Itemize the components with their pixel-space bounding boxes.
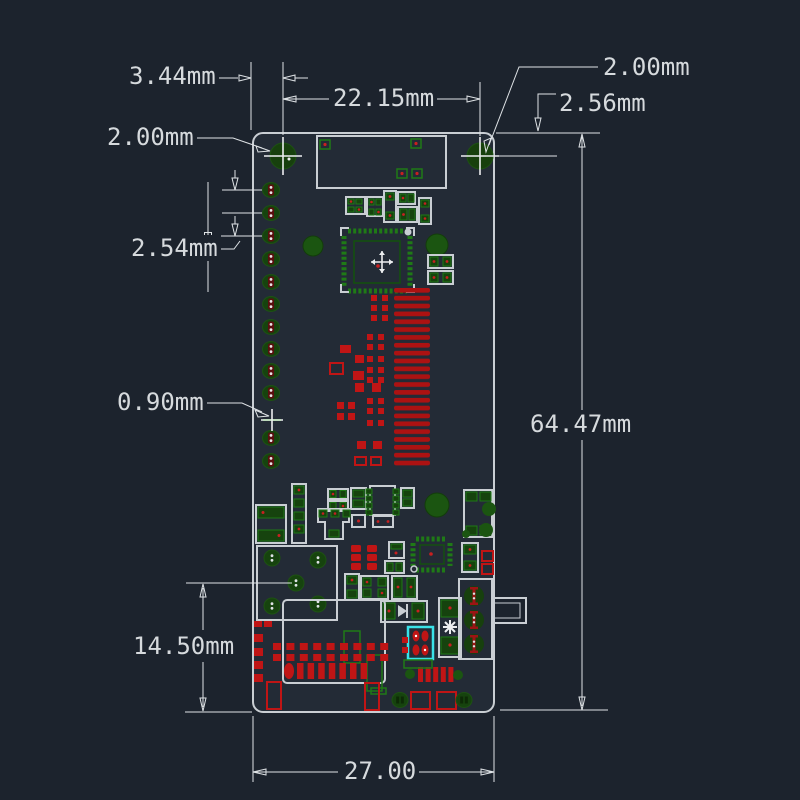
dim-label-board-height: 64.47mm xyxy=(527,411,634,437)
dim-label-small-hole: 0.90mm xyxy=(114,389,207,415)
slide-switch xyxy=(459,579,526,659)
dim-label-hole-offset-y: 2.56mm xyxy=(556,90,649,116)
dim-label-left-hole: 2.00mm xyxy=(104,124,197,150)
board-outline xyxy=(253,133,494,712)
dim-label-hole-spacing: 22.15mm xyxy=(330,85,437,111)
fpc-connector xyxy=(394,288,430,468)
dim-label-right-hole: 2.00mm xyxy=(600,54,693,80)
dim-label-board-width: 27.00 xyxy=(341,758,419,784)
dim-label-connector-offset: 14.50mm xyxy=(130,633,237,659)
dim-label-left-hole-offset-x: 3.44mm xyxy=(126,63,219,89)
cad-viewport[interactable]: 3.44mm 2.00mm 22.15mm 2.00mm 2.56mm 2.54… xyxy=(0,0,800,800)
dim-label-pin-pitch: 2.54mm xyxy=(128,235,221,261)
